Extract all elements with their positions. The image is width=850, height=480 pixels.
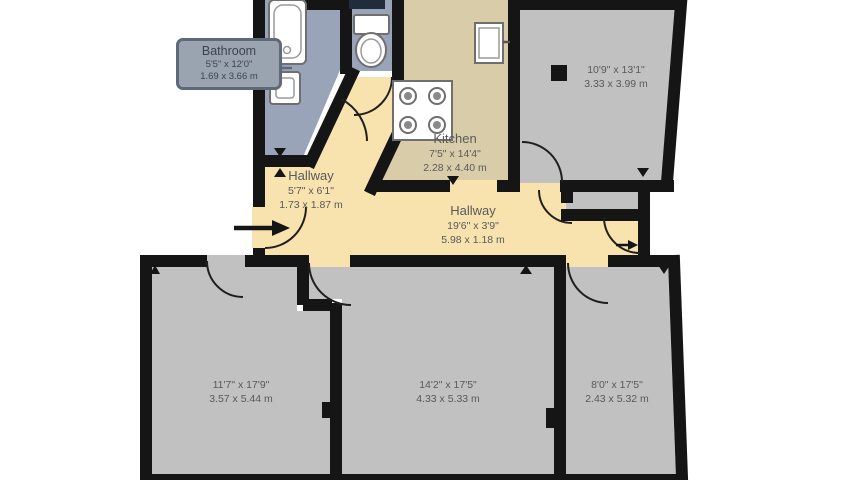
hallway-small-label: Hallway 5'7" x 6'1" 1.73 x 1.87 m (279, 168, 343, 212)
room-dimensions-metric: 4.33 x 5.33 m (416, 392, 480, 406)
middle-door-gap (309, 255, 350, 267)
room-dimensions-imperial: 14'2" x 17'5" (416, 378, 480, 392)
room-dimensions-imperial: 8'0" x 17'5" (585, 378, 649, 392)
room-dimensions-imperial: 5'7" x 6'1" (279, 184, 343, 198)
hallway-long-label: Hallway 19'6" x 3'9" 5.98 x 1.18 m (441, 203, 505, 247)
room-dimensions-metric: 2.43 x 5.32 m (585, 392, 649, 406)
right-door-gap (566, 255, 608, 267)
divider-left-stub (322, 402, 336, 418)
room-top-right-label: 10'9" x 13'1" 3.33 x 3.99 m (584, 63, 648, 91)
room-dimensions-imperial: 7'5" x 14'4" (423, 147, 487, 161)
room-dimensions-imperial: 10'9" x 13'1" (584, 63, 648, 77)
floorplan: Bathroom 5'5" x 12'0" 1.69 x 3.66 m Kitc… (0, 0, 850, 480)
room-name: Hallway (279, 168, 343, 184)
toilet-icon (354, 15, 389, 67)
outer-right-wall (674, 261, 682, 478)
room-name: Bathroom (181, 44, 277, 59)
room-dimensions-imperial: 19'6" x 3'9" (441, 219, 505, 233)
room-dimensions-imperial: 5'5" x 12'0" (181, 59, 277, 71)
room-bottom-middle-label: 14'2" x 17'5" 4.33 x 5.33 m (416, 378, 480, 406)
room-bottom-right-floor (566, 267, 676, 480)
bathroom-callout: Bathroom 5'5" x 12'0" 1.69 x 3.66 m (176, 38, 282, 90)
room-dimensions-metric: 3.33 x 3.99 m (584, 77, 648, 91)
room-bottom-left-label: 11'7" x 17'9" 3.57 x 5.44 m (209, 378, 273, 406)
kitchen-label: Kitchen 7'5" x 14'4" 2.28 x 4.40 m (423, 131, 487, 175)
room-name: Kitchen (423, 131, 487, 147)
room-dimensions-metric: 3.57 x 5.44 m (209, 392, 273, 406)
room-dimensions-imperial: 11'7" x 17'9" (209, 378, 273, 392)
room-name: Hallway (441, 203, 505, 219)
bottom-left-door-gap (207, 255, 245, 267)
room-bottom-right-label: 8'0" x 17'5" 2.43 x 5.32 m (585, 378, 649, 406)
room-top-right-floor (520, 10, 675, 183)
room-dimensions-metric: 5.98 x 1.18 m (441, 233, 505, 247)
room-dimensions-metric: 2.28 x 4.40 m (423, 161, 487, 175)
room-dimensions-metric: 1.73 x 1.87 m (279, 198, 343, 212)
divider-right-stub (546, 408, 566, 428)
room-area-marker-icon (551, 65, 567, 81)
room-bottom-middle-floor (309, 267, 554, 480)
window-icon (349, 0, 385, 9)
room-dimensions-metric: 1.69 x 3.66 m (181, 71, 277, 83)
floorplan-canvas (0, 0, 850, 480)
